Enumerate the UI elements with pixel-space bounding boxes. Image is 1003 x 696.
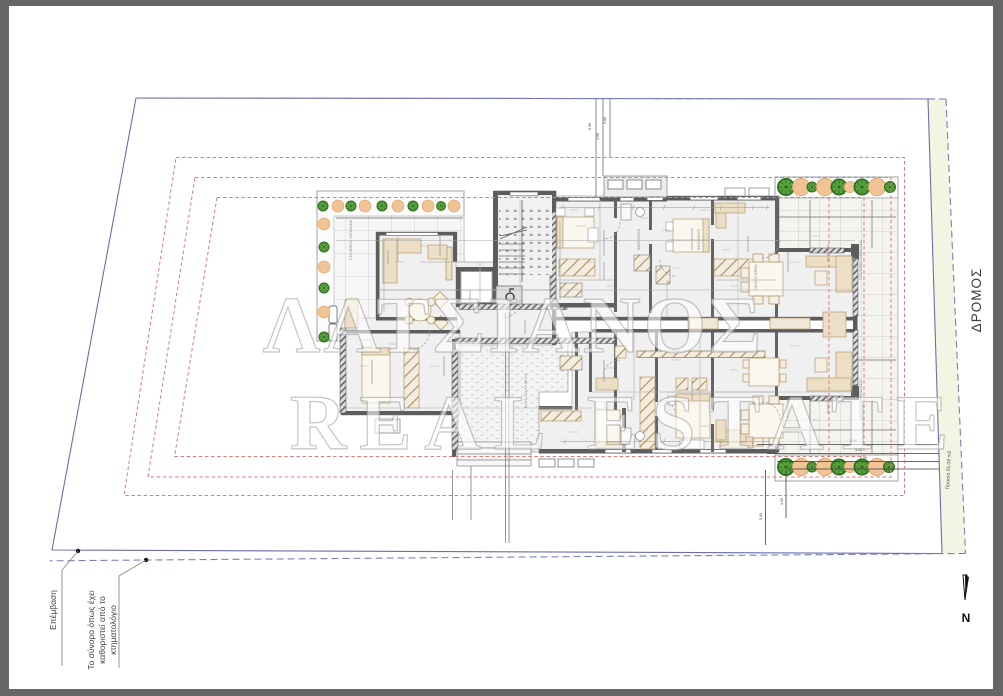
svg-text:ΛΑΤΣΙΑΝΟΣ: ΛΑΤΣΙΑΝΟΣ (263, 282, 764, 370)
svg-text:ΔΡΟΜΟΣ: ΔΡΟΜΟΣ (969, 268, 984, 333)
svg-text:3.00: 3.00 (780, 498, 784, 505)
svg-text:4.50: 4.50 (596, 133, 600, 140)
svg-text:N: N (962, 611, 971, 625)
svg-text:καθοριστεί από το: καθοριστεί από το (97, 596, 107, 664)
svg-text:Το σύνορο όπως έχει: Το σύνορο όπως έχει (86, 590, 96, 670)
svg-text:5.00: 5.00 (588, 123, 592, 130)
svg-text:COVERED VERANDA: COVERED VERANDA (858, 239, 863, 280)
svg-text:3.00: 3.00 (603, 117, 607, 124)
svg-text:BEDROOM: BEDROOM (636, 229, 641, 250)
svg-text:REAL ESTATE: REAL ESTATE (290, 379, 961, 466)
svg-text:COVERED VERANDA: COVERED VERANDA (348, 219, 353, 260)
svg-text:Επέμβαση: Επέμβαση (48, 590, 58, 630)
svg-text:κτηματολόγιο: κτηματολόγιο (108, 605, 118, 655)
svg-text:5.00: 5.00 (759, 513, 763, 520)
